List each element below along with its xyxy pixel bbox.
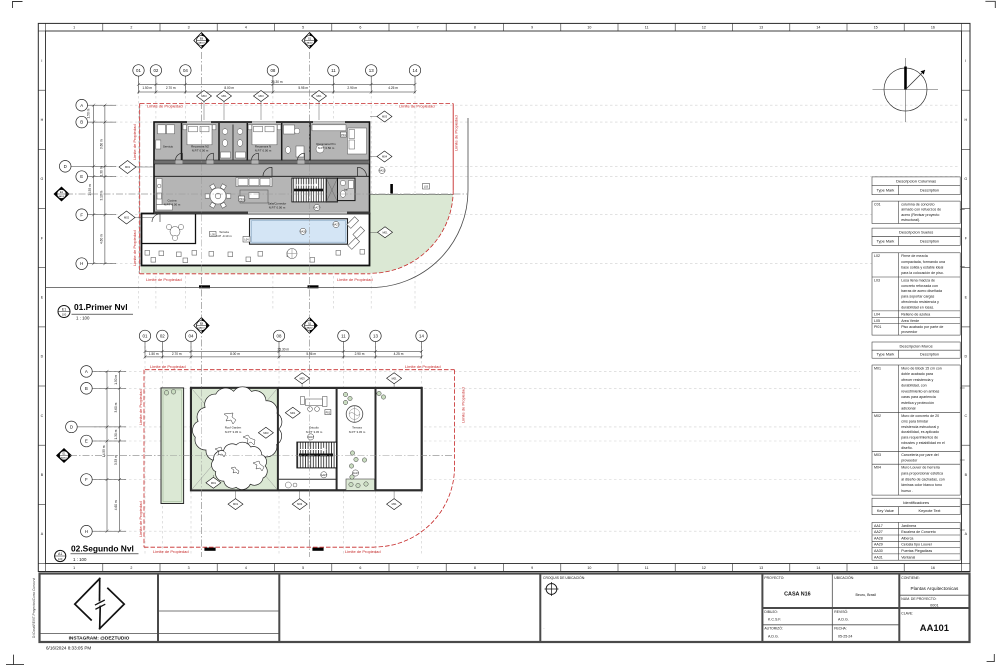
svg-text:Muro de Block 15 cm con: Muro de Block 15 cm con — [901, 366, 942, 370]
svg-text:Piso acabado por parte de: Piso acabado por parte de — [901, 325, 943, 329]
svg-text:.: . — [544, 626, 545, 630]
svg-text:1: 1 — [73, 566, 75, 570]
svg-text:N.P.T 0.00 m: N.P.T 0.00 m — [255, 149, 272, 153]
svg-text:UBICACIÓN:: UBICACIÓN: — [834, 575, 854, 580]
svg-text:L03: L03 — [424, 186, 429, 189]
svg-text:NUM. DE PROYECTO:: NUM. DE PROYECTO: — [901, 597, 936, 601]
svg-text:11: 11 — [331, 68, 336, 73]
svg-text:L03: L03 — [874, 278, 880, 282]
svg-text:AA302: AA302 — [306, 42, 313, 45]
svg-text:Limite de Propiedad: Limite de Propiedad — [150, 364, 186, 369]
svg-text:P01: P01 — [341, 133, 346, 137]
svg-text:M03: M03 — [874, 453, 881, 457]
svg-text:M02: M02 — [124, 216, 130, 220]
svg-text:M03: M03 — [263, 431, 269, 435]
svg-text:D: D — [70, 425, 73, 430]
svg-text:AA31: AA31 — [379, 170, 386, 173]
svg-text:04: 04 — [183, 68, 188, 73]
svg-text:M04: M04 — [874, 466, 881, 470]
svg-text:3.53 m: 3.53 m — [114, 455, 118, 465]
svg-text:FECHA:: FECHA: — [834, 627, 846, 631]
svg-text:H: H — [80, 261, 83, 266]
svg-text:PI01: PI01 — [874, 325, 881, 329]
svg-text:S1: S1 — [308, 322, 312, 326]
svg-text:Type Mark: Type Mark — [877, 353, 895, 357]
svg-text:M01: M01 — [316, 94, 322, 98]
svg-text:AA303: AA303 — [198, 327, 205, 330]
svg-text:4.25 m: 4.25 m — [394, 352, 404, 356]
svg-text:robustes y estabilidad en el: robustes y estabilidad en el — [901, 441, 945, 445]
svg-text:AA31: AA31 — [874, 555, 883, 559]
svg-text:E: E — [85, 439, 88, 444]
svg-text:L05: L05 — [874, 319, 880, 323]
svg-text:2: 2 — [130, 26, 132, 30]
svg-text:estructural).: estructural). — [901, 218, 920, 222]
svg-text:100: 100 — [58, 557, 63, 561]
svg-text:AA28: AA28 — [300, 230, 307, 233]
svg-text:2: 2 — [130, 566, 132, 570]
svg-text:Limite de Propiedad: Limite de Propiedad — [461, 387, 466, 423]
svg-text:12: 12 — [702, 26, 706, 30]
svg-text:4.60 m: 4.60 m — [99, 234, 103, 244]
svg-text:Limite de Propiedad: Limite de Propiedad — [132, 230, 137, 266]
svg-text:Canceleria por pare del: Canceleria por pare del — [901, 453, 939, 457]
svg-text:base solida y estable ideal: base solida y estable ideal — [901, 266, 943, 270]
svg-text:Keynote Text: Keynote Text — [919, 509, 942, 513]
svg-text:S1: S1 — [308, 37, 312, 41]
svg-text:N.P.T 0.00 m: N.P.T 0.00 m — [164, 203, 181, 207]
svg-text:AA17: AA17 — [308, 436, 315, 439]
svg-text:columna de concreto: columna de concreto — [901, 203, 934, 207]
svg-text:4: 4 — [245, 566, 247, 570]
svg-text:AUTORIZÓ:: AUTORIZÓ: — [764, 626, 782, 631]
svg-text:Descripcion Suelos: Descripcion Suelos — [899, 230, 933, 235]
svg-text:25.30 m: 25.30 m — [278, 347, 290, 351]
svg-text:M03: M03 — [201, 94, 207, 98]
svg-text:10: 10 — [587, 566, 591, 570]
svg-text:para la colocación de piso.: para la colocación de piso. — [901, 271, 944, 275]
svg-text:Alberca: Alberca — [901, 536, 913, 540]
svg-text:4.60 m: 4.60 m — [114, 500, 118, 510]
svg-text:15: 15 — [874, 566, 878, 570]
svg-text:barras de acero diseñada: barras de acero diseñada — [901, 289, 942, 293]
svg-text:Limite de Propiedad: Limite de Propiedad — [399, 103, 435, 108]
svg-text:3.60 m: 3.60 m — [114, 402, 118, 412]
svg-text:Type Mark: Type Mark — [877, 239, 895, 243]
svg-text:REVISÓ:: REVISÓ: — [834, 609, 848, 614]
svg-text:5.96 m: 5.96 m — [306, 352, 316, 356]
svg-text:estetica y protección: estetica y protección — [901, 401, 934, 405]
svg-text:P01: P01 — [239, 197, 244, 201]
svg-text:Losa llena maciza de: Losa llena maciza de — [901, 278, 935, 282]
svg-text:1 : 100: 1 : 100 — [76, 316, 90, 321]
svg-text:N.P.T 0.00 m: N.P.T 0.00 m — [192, 149, 209, 153]
svg-text:ofreciendo resistencia y: ofreciendo resistencia y — [901, 300, 939, 304]
svg-text:D: D — [64, 164, 67, 169]
svg-text:M02: M02 — [874, 414, 881, 418]
svg-text:5: 5 — [302, 566, 304, 570]
svg-text:AA302: AA302 — [306, 327, 313, 330]
svg-text:100: 100 — [62, 313, 67, 317]
svg-text:2.90 m: 2.90 m — [347, 86, 357, 90]
svg-text:10: 10 — [587, 26, 591, 30]
svg-text:04: 04 — [189, 334, 194, 339]
svg-text:8: 8 — [474, 26, 476, 30]
svg-text:1.50 m: 1.50 m — [149, 352, 159, 356]
svg-text:L04: L04 — [874, 312, 880, 316]
svg-text:Puertas Plegadizas: Puertas Plegadizas — [901, 549, 932, 553]
svg-text:N.P.T 3.45 m: N.P.T 3.45 m — [225, 430, 242, 434]
svg-text:M03: M03 — [382, 115, 388, 119]
svg-text:acero (Revisar proyecto: acero (Revisar proyecto — [901, 213, 939, 217]
svg-text:B: B — [80, 120, 83, 125]
svg-text:M01: M01 — [221, 94, 227, 98]
svg-text:resistencia estructural y: resistencia estructural y — [901, 425, 939, 429]
svg-text:INSTAGRAM: @DEZTUDIO: INSTAGRAM: @DEZTUDIO — [69, 636, 130, 642]
svg-text:durabilidad, con: durabilidad, con — [901, 384, 926, 388]
svg-text:L02: L02 — [874, 254, 880, 258]
svg-text:Muro Louver de herreria: Muro Louver de herreria — [901, 466, 940, 470]
svg-text:9: 9 — [531, 566, 533, 570]
svg-text:N.P.T 3.45 m: N.P.T 3.45 m — [349, 430, 366, 434]
svg-text:Limite de Propiedad: Limite de Propiedad — [146, 277, 182, 282]
svg-text:durabilidad, es aplicado: durabilidad, es aplicado — [901, 430, 939, 434]
svg-text:N.P.T 3.45 m: N.P.T 3.45 m — [306, 430, 323, 434]
svg-text:para soportar cargas: para soportar cargas — [901, 295, 934, 299]
svg-text:D:\Cosa\REVIT-Proyectos\Curso: D:\Cosa\REVIT-Proyectos\Curso Curso.rvt — [32, 578, 36, 638]
svg-text:1.30 m: 1.30 m — [99, 166, 103, 176]
svg-text:concreto reforzada con: concreto reforzada con — [901, 284, 938, 288]
svg-text:M03: M03 — [297, 502, 303, 506]
svg-text:13: 13 — [759, 26, 763, 30]
svg-text:6: 6 — [359, 26, 361, 30]
svg-text:1: 1 — [73, 26, 75, 30]
svg-text:M03: M03 — [258, 94, 264, 98]
svg-text:Ventanal: Ventanal — [901, 555, 915, 559]
svg-text:25.30 m: 25.30 m — [271, 80, 283, 84]
svg-text:AA301: AA301 — [59, 195, 65, 198]
svg-text:H: H — [85, 529, 88, 534]
svg-text:11: 11 — [341, 334, 346, 339]
svg-text:AA29: AA29 — [874, 543, 883, 547]
svg-text:3: 3 — [188, 566, 190, 570]
svg-text:Descripcion Muros: Descripcion Muros — [900, 344, 933, 349]
svg-text:02.Segundo Nvl: 02.Segundo Nvl — [71, 544, 134, 554]
svg-text:AA17: AA17 — [353, 472, 360, 475]
svg-text:15: 15 — [874, 26, 878, 30]
svg-text:Celosia tipo Louver: Celosia tipo Louver — [901, 543, 933, 547]
svg-text:CONTIENE:: CONTIENE: — [901, 576, 920, 580]
svg-text:N.P -0.10 m: N.P -0.10 m — [216, 234, 232, 238]
svg-text:D: D — [964, 355, 967, 359]
svg-text:05-25-24: 05-25-24 — [838, 635, 852, 639]
svg-text:Limite de Propiedad: Limite de Propiedad — [454, 115, 459, 151]
svg-text:E8: E8 — [200, 322, 204, 326]
svg-text:diseño.: diseño. — [901, 446, 913, 450]
svg-text:Limite de Propiedad: Limite de Propiedad — [405, 364, 441, 369]
svg-text:AA27: AA27 — [314, 207, 321, 210]
svg-text:compactada, formando una: compactada, formando una — [901, 260, 945, 264]
svg-text:Servicio: Servicio — [163, 145, 174, 149]
svg-text:14: 14 — [413, 68, 418, 73]
svg-text:Plantas Arquitectonicas: Plantas Arquitectonicas — [911, 586, 959, 591]
svg-text:9: 9 — [531, 26, 533, 30]
svg-text:armado con refuerzos de: armado con refuerzos de — [901, 208, 941, 212]
svg-text:02: 02 — [160, 334, 165, 339]
svg-text:Description: Description — [920, 239, 939, 243]
svg-text:6: 6 — [359, 566, 361, 570]
svg-text:3.10 m: 3.10 m — [99, 190, 103, 200]
svg-text:A1: A1 — [58, 552, 62, 556]
svg-text:4.25 m: 4.25 m — [388, 86, 398, 90]
svg-text:16: 16 — [931, 566, 935, 570]
svg-text:F: F — [85, 477, 88, 482]
svg-text:Descripcion Columnas: Descripcion Columnas — [896, 179, 936, 184]
svg-text:E1: E1 — [62, 308, 66, 312]
svg-text:Type Mark: Type Mark — [877, 188, 895, 192]
svg-text:01: 01 — [143, 334, 148, 339]
svg-text:14: 14 — [816, 26, 820, 30]
svg-text:I: I — [965, 59, 966, 63]
svg-text:5.95 m: 5.95 m — [298, 86, 308, 90]
svg-text:1.50 m: 1.50 m — [142, 86, 152, 90]
svg-text:8.00 m: 8.00 m — [230, 352, 240, 356]
svg-text:13: 13 — [369, 68, 374, 73]
svg-text:08: 08 — [277, 334, 282, 339]
svg-text:2.70 m: 2.70 m — [166, 86, 176, 90]
svg-text:cms para brindar: cms para brindar — [901, 419, 929, 423]
svg-text:F: F — [80, 212, 83, 217]
svg-text:PROYECTO:: PROYECTO: — [764, 576, 784, 580]
svg-text:08: 08 — [270, 68, 275, 73]
svg-text:CROQUIS DE UBICACIÓN:: CROQUIS DE UBICACIÓN: — [543, 575, 585, 580]
svg-text:caras para apariencia: caras para apariencia — [901, 395, 936, 399]
svg-text:Limite de Propiedad: Limite de Propiedad — [153, 549, 189, 554]
svg-text:Description: Description — [920, 188, 939, 192]
svg-text:A.D.G.: A.D.G. — [838, 618, 849, 622]
svg-text:revestimiento en ambas: revestimiento en ambas — [901, 389, 939, 393]
svg-text:C01: C01 — [874, 203, 881, 207]
svg-text:3: 3 — [188, 26, 190, 30]
svg-text:láminas color blanco tono: láminas color blanco tono — [901, 483, 942, 487]
svg-text:para requerimientos de: para requerimientos de — [901, 436, 938, 440]
svg-text:L04: L04 — [244, 239, 249, 242]
svg-text:I: I — [41, 59, 42, 63]
svg-text:CLAVE:: CLAVE: — [901, 612, 913, 616]
svg-text:Muro de concreto de 20: Muro de concreto de 20 — [901, 414, 939, 418]
svg-text:CASA N16: CASA N16 — [784, 592, 810, 598]
svg-text:ofrecer resistencia y: ofrecer resistencia y — [901, 378, 933, 382]
svg-text:Limite de Propiedad: Limite de Propiedad — [138, 501, 143, 537]
svg-text:13: 13 — [759, 566, 763, 570]
svg-text:16: 16 — [931, 26, 935, 30]
svg-text:B: B — [85, 386, 88, 391]
svg-text:01: 01 — [136, 68, 141, 73]
svg-text:E8: E8 — [200, 37, 204, 41]
svg-text:A: A — [80, 103, 83, 108]
svg-text:H: H — [964, 118, 967, 122]
svg-text:M01: M01 — [392, 502, 398, 506]
svg-text:adicional: adicional — [901, 407, 915, 411]
svg-text:02: 02 — [153, 68, 158, 73]
svg-text:Description: Description — [920, 353, 939, 357]
svg-text:M01: M01 — [874, 366, 881, 370]
svg-text:Beuru, Brasil: Beuru, Brasil — [856, 593, 877, 597]
svg-text:2.70 m: 2.70 m — [172, 352, 182, 356]
svg-text:13: 13 — [373, 334, 378, 339]
svg-text:14: 14 — [816, 566, 820, 570]
svg-text:Firme de mezcla: Firme de mezcla — [901, 254, 928, 258]
svg-text:para proporcionar estetica: para proporcionar estetica — [901, 472, 943, 476]
svg-text:D: D — [41, 355, 44, 359]
svg-text:M01: M01 — [125, 165, 131, 169]
svg-text:8.00 m: 8.00 m — [224, 86, 234, 90]
svg-text:DIBUJO:: DIBUJO: — [764, 610, 777, 614]
svg-text:proveedor: proveedor — [901, 330, 918, 334]
svg-text:7: 7 — [417, 26, 419, 30]
svg-text:M01: M01 — [233, 502, 239, 506]
svg-text:AA30: AA30 — [874, 549, 883, 553]
svg-text:AA27: AA27 — [874, 530, 883, 534]
svg-text:proveedor: proveedor — [901, 459, 918, 463]
svg-text:AA301: AA301 — [61, 457, 67, 460]
svg-text:AA101: AA101 — [920, 622, 949, 633]
svg-text:H: H — [41, 118, 44, 122]
svg-text:4: 4 — [245, 26, 247, 30]
svg-text:3.60 m: 3.60 m — [99, 139, 103, 149]
svg-text:Relleno de azotea: Relleno de azotea — [901, 312, 930, 316]
svg-text:1.30 m: 1.30 m — [114, 429, 118, 439]
svg-text:Identificadores: Identificadores — [903, 500, 929, 505]
svg-text:M04: M04 — [382, 155, 388, 159]
svg-text:Limite de Propiedad: Limite de Propiedad — [337, 277, 373, 282]
svg-text:AA27: AA27 — [321, 474, 328, 477]
svg-text:7: 7 — [417, 566, 419, 570]
svg-text:M01: M01 — [392, 376, 398, 380]
svg-text:8: 8 — [474, 566, 476, 570]
svg-text:hueso .: hueso . — [901, 489, 913, 493]
svg-text:AA28: AA28 — [874, 536, 883, 540]
svg-text:12: 12 — [702, 566, 706, 570]
svg-text:A: A — [85, 369, 88, 374]
svg-text:5: 5 — [302, 26, 304, 30]
svg-text:AA17: AA17 — [874, 524, 883, 528]
svg-text:1.50 m: 1.50 m — [114, 375, 118, 385]
svg-text:C: C — [41, 414, 44, 418]
svg-text:A.D.G.: A.D.G. — [768, 635, 779, 639]
svg-text:al diseño de cachadas, con: al diseño de cachadas, con — [901, 477, 945, 481]
svg-text:bañ: bañ — [344, 189, 349, 192]
svg-text:AA27: AA27 — [333, 224, 340, 227]
svg-text:P01: P01 — [326, 410, 331, 414]
svg-text:M01: M01 — [382, 230, 388, 234]
svg-text:N.P.T 0.50 m: N.P.T 0.50 m — [318, 146, 335, 150]
svg-text:11: 11 — [645, 566, 649, 570]
svg-text:E: E — [80, 174, 83, 179]
svg-text:Jardinera: Jardinera — [901, 524, 916, 528]
svg-text:Limite de Propiedad: Limite de Propiedad — [132, 124, 137, 160]
svg-text:1 : 100: 1 : 100 — [73, 557, 87, 562]
svg-text:1.50 m: 1.50 m — [87, 108, 91, 118]
svg-text:Escalera de Concreto: Escalera de Concreto — [901, 530, 936, 534]
svg-text:durabilidad en losas.: durabilidad en losas. — [901, 305, 934, 309]
svg-text:L05: L05 — [211, 233, 216, 236]
svg-text:AA303: AA303 — [198, 42, 205, 45]
svg-text:C: C — [964, 414, 967, 418]
svg-text:doble acabado para: doble acabado para — [901, 372, 933, 376]
svg-text:K.C.S.F.: K.C.S.F. — [768, 618, 781, 622]
svg-text:Limite de Propiedad: Limite de Propiedad — [138, 389, 143, 425]
svg-text:Limite de Propiedad: Limite de Propiedad — [345, 549, 381, 554]
svg-text:G: G — [41, 177, 44, 181]
svg-text:01.Primer Nvl: 01.Primer Nvl — [74, 302, 128, 312]
svg-text:Area Verde: Area Verde — [901, 319, 919, 323]
svg-text:N.P.T 0.00 m: N.P.T 0.00 m — [269, 206, 286, 210]
svg-text:Key Value: Key Value — [877, 509, 894, 513]
svg-text:14: 14 — [419, 334, 424, 339]
svg-text:G: G — [964, 177, 967, 181]
svg-text:M03: M03 — [300, 376, 306, 380]
svg-text:M01: M01 — [290, 411, 296, 415]
svg-text:Limite de Propiedad: Limite de Propiedad — [147, 103, 183, 108]
svg-text:11: 11 — [645, 26, 649, 30]
svg-text:2.90 m: 2.90 m — [355, 352, 365, 356]
svg-text:M01: M01 — [211, 481, 217, 485]
svg-text:0001: 0001 — [930, 604, 938, 608]
svg-text:6/16/2024 8:33:05 PM: 6/16/2024 8:33:05 PM — [46, 646, 91, 651]
